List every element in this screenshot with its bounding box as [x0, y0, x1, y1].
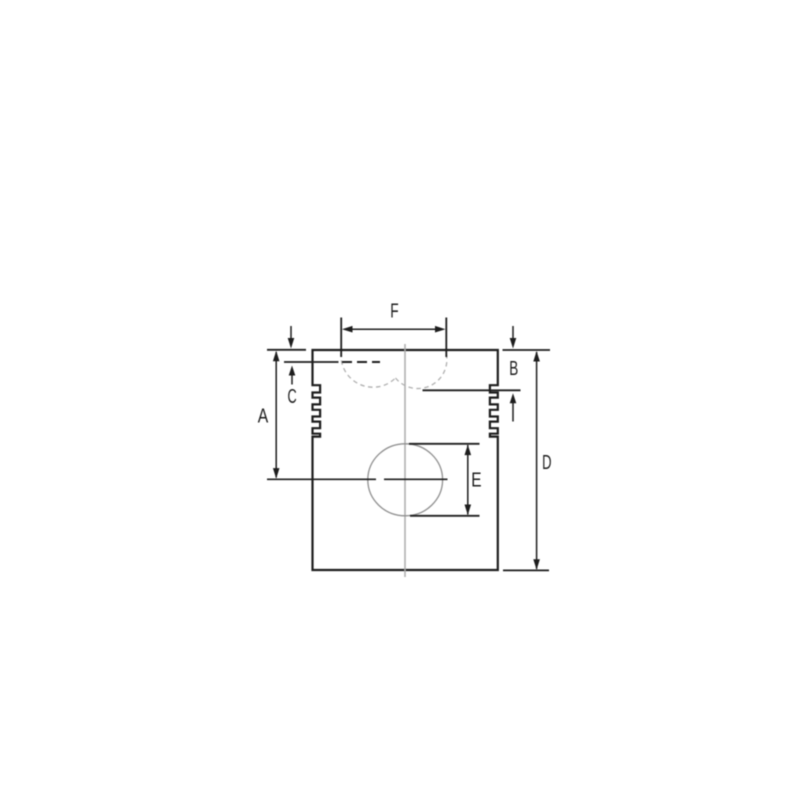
svg-text:C: C: [288, 385, 297, 408]
svg-text:D: D: [542, 451, 551, 474]
svg-text:A: A: [258, 405, 269, 428]
svg-text:F: F: [390, 299, 398, 322]
svg-text:E: E: [471, 468, 481, 491]
svg-text:B: B: [509, 357, 518, 380]
